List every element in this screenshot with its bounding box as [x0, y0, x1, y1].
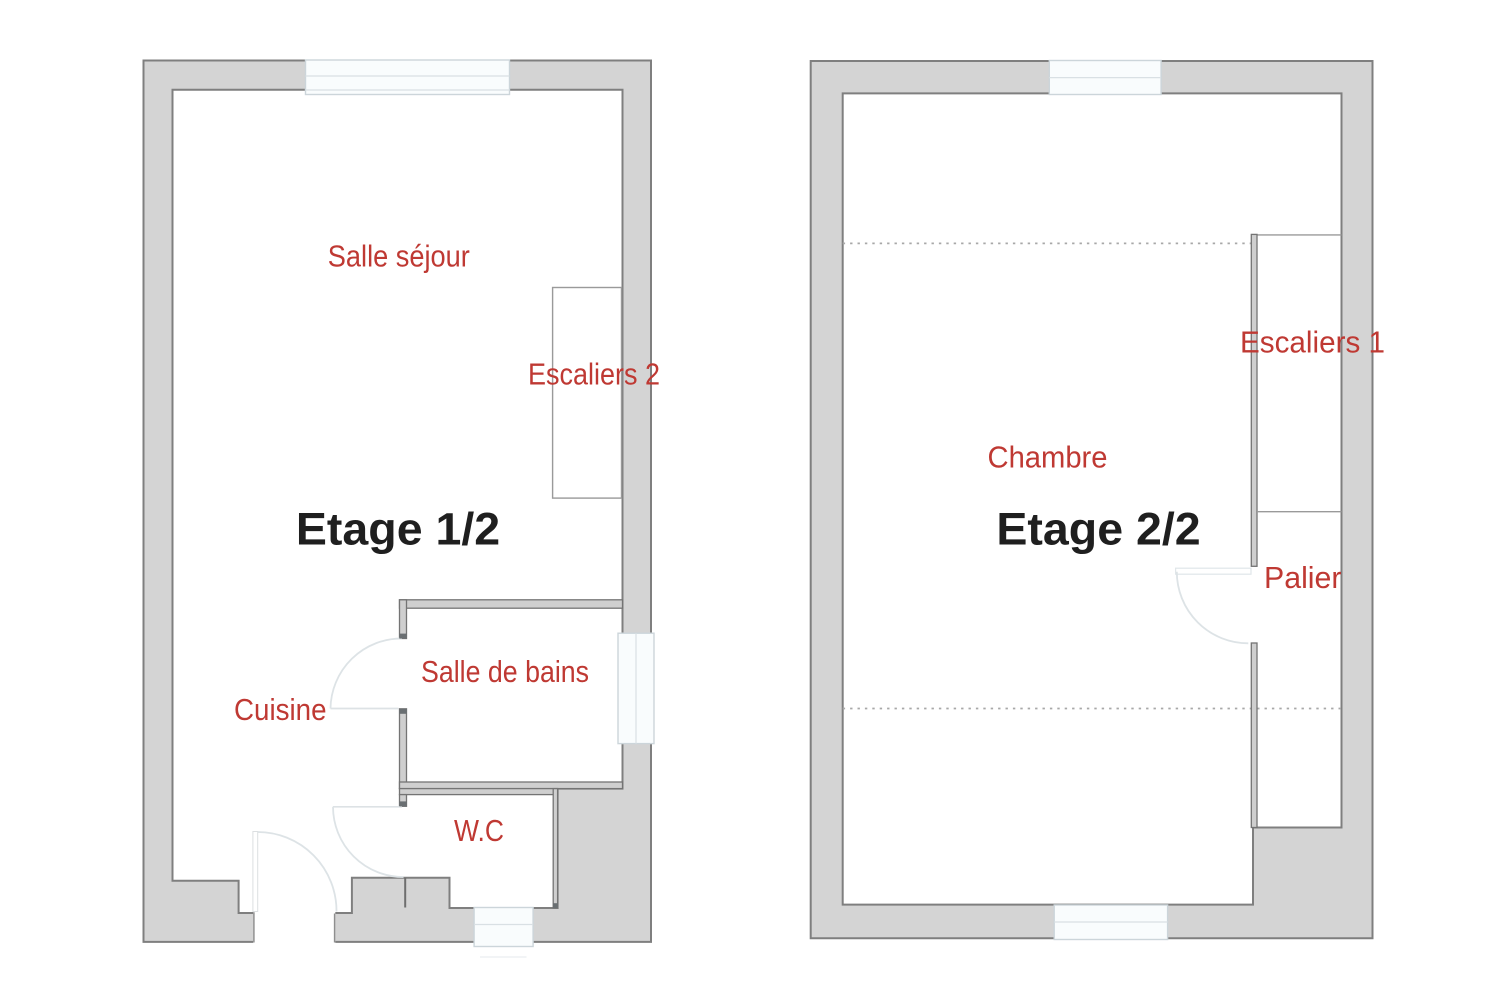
svg-text:Salle de bains: Salle de bains [421, 654, 589, 689]
svg-text:Chambre: Chambre [988, 440, 1108, 475]
svg-text:W.C: W.C [454, 813, 504, 848]
svg-text:Etage 2/2: Etage 2/2 [996, 503, 1200, 554]
svg-text:Cuisine: Cuisine [234, 692, 327, 727]
svg-text:Palier: Palier [1264, 560, 1342, 595]
svg-text:Salle séjour: Salle séjour [328, 239, 470, 274]
svg-text:Escaliers 1: Escaliers 1 [1240, 325, 1385, 360]
svg-text:Etage 1/2: Etage 1/2 [296, 503, 500, 554]
svg-text:Escaliers 2: Escaliers 2 [528, 357, 660, 392]
